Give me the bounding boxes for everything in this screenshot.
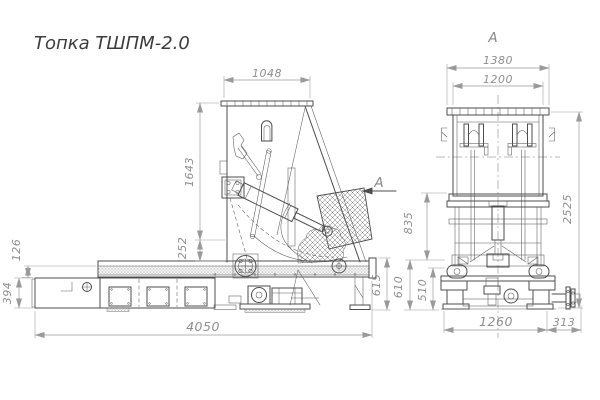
fuel-pile bbox=[298, 226, 346, 263]
conveyor bbox=[32, 254, 376, 313]
front-base bbox=[441, 276, 580, 309]
dim-shaft-overhang: 313 bbox=[553, 316, 576, 329]
dim-base-width: 1260 bbox=[479, 314, 513, 329]
wall-fitting bbox=[220, 161, 227, 174]
hanger-left bbox=[460, 124, 488, 155]
drawing-title: Топка ТШПМ-2.0 bbox=[34, 33, 190, 54]
trough-body bbox=[100, 278, 215, 308]
dim-trough-height: 394 bbox=[1, 282, 14, 305]
support-legs bbox=[107, 277, 370, 312]
dim-flange-width: 1380 bbox=[483, 54, 513, 67]
lever-rod bbox=[238, 146, 261, 176]
front-view: A bbox=[392, 30, 583, 338]
link-line-dashed bbox=[230, 198, 247, 258]
access-hatches bbox=[109, 287, 207, 306]
lever-pin bbox=[256, 174, 261, 179]
dim-rear-frame-height: 615 bbox=[370, 274, 383, 297]
drawing-sheet: Топка ТШПМ-2.0 bbox=[0, 0, 600, 400]
chain-strip bbox=[98, 266, 369, 275]
view-direction-arrow: A bbox=[362, 175, 396, 191]
front-view-label: A bbox=[487, 30, 497, 46]
dim-body-width: 1200 bbox=[483, 73, 513, 86]
lever-plate bbox=[233, 133, 247, 159]
central-drive bbox=[484, 278, 518, 305]
dim-base-height: 610 bbox=[392, 276, 405, 299]
front-flange-ticks bbox=[452, 108, 540, 115]
keyhole-slot bbox=[262, 121, 272, 141]
dim-foot-height: 510 bbox=[416, 279, 429, 302]
hanger-right bbox=[508, 124, 536, 155]
technical-drawing: Топка ТШПМ-2.0 bbox=[0, 0, 600, 400]
dim-chain-rise: 126 bbox=[10, 239, 23, 262]
dim-overall-length: 4050 bbox=[186, 319, 220, 334]
dim-frame-height: 835 bbox=[402, 212, 415, 235]
output-shaft bbox=[552, 287, 580, 309]
foot-left bbox=[441, 281, 469, 309]
dim-pivot-offset: 252 bbox=[176, 237, 189, 260]
view-arrow-label: A bbox=[373, 175, 383, 191]
flange-bolt-ticks bbox=[227, 101, 307, 106]
tail-box bbox=[32, 278, 100, 308]
side-view: A bbox=[1, 67, 396, 338]
dim-furnace-height: 1643 bbox=[183, 157, 196, 187]
trough-partitions bbox=[139, 279, 177, 307]
push-strut bbox=[250, 148, 272, 239]
dim-hopper-top-width: 1048 bbox=[252, 67, 282, 80]
dim-overall-height: 2525 bbox=[561, 194, 574, 224]
bearing-row bbox=[447, 254, 549, 278]
foot-right bbox=[527, 281, 555, 309]
